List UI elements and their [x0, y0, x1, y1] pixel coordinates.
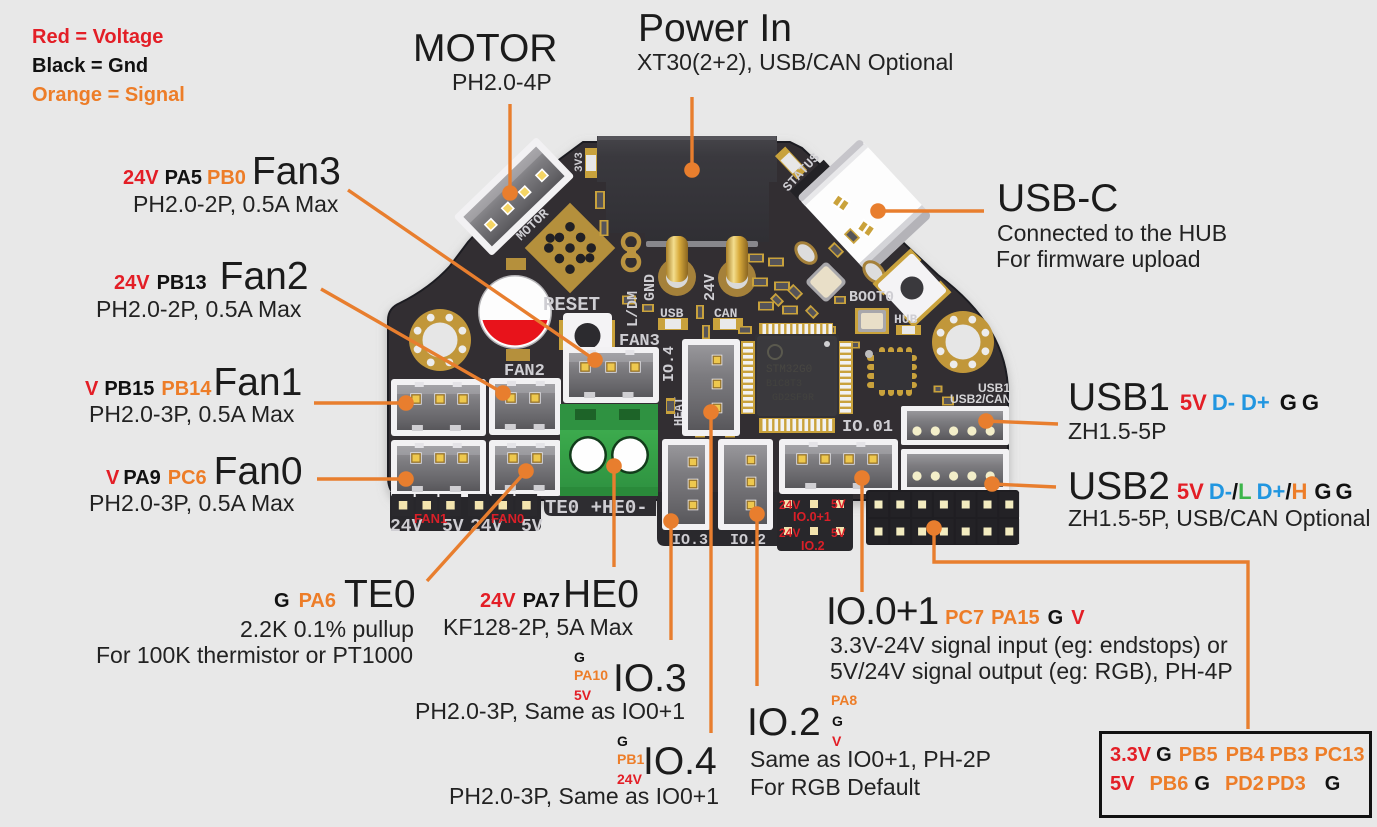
svg-text:B1C8T3: B1C8T3 — [766, 379, 802, 390]
svg-text:L/DM: L/DM — [625, 291, 642, 327]
svg-text:IO.01: IO.01 — [842, 418, 893, 437]
svg-text:5V: 5V — [521, 517, 543, 537]
svg-text:GD2SF9R: GD2SF9R — [772, 393, 814, 404]
svg-text:USB: USB — [660, 306, 684, 321]
svg-text:TE0 +HE0-: TE0 +HE0- — [545, 497, 648, 519]
svg-text:USB2/CAN: USB2/CAN — [950, 392, 1011, 406]
svg-text:IO.3: IO.3 — [672, 532, 708, 549]
svg-text:FAN2: FAN2 — [504, 362, 545, 381]
svg-text:5V: 5V — [831, 526, 846, 540]
svg-text:IO.2: IO.2 — [730, 532, 766, 549]
svg-text:3V3: 3V3 — [574, 152, 586, 172]
svg-text:STM32G0: STM32G0 — [766, 364, 812, 376]
svg-text:5V: 5V — [831, 497, 846, 511]
svg-text:24V: 24V — [702, 274, 719, 301]
svg-text:BOOT0: BOOT0 — [849, 289, 894, 306]
svg-text:GND: GND — [642, 274, 659, 301]
svg-text:CAN: CAN — [714, 306, 737, 321]
svg-text:FAN0: FAN0 — [491, 511, 524, 526]
svg-text:HUB: HUB — [894, 312, 918, 327]
svg-text:FAN3: FAN3 — [619, 332, 660, 351]
svg-text:RESET: RESET — [543, 294, 600, 316]
svg-text:IO.2: IO.2 — [801, 539, 825, 553]
svg-text:24V: 24V — [779, 526, 800, 540]
svg-text:FAN1: FAN1 — [414, 511, 447, 526]
svg-text:IO.0+1: IO.0+1 — [793, 510, 831, 524]
svg-text:IO.4: IO.4 — [661, 346, 678, 382]
